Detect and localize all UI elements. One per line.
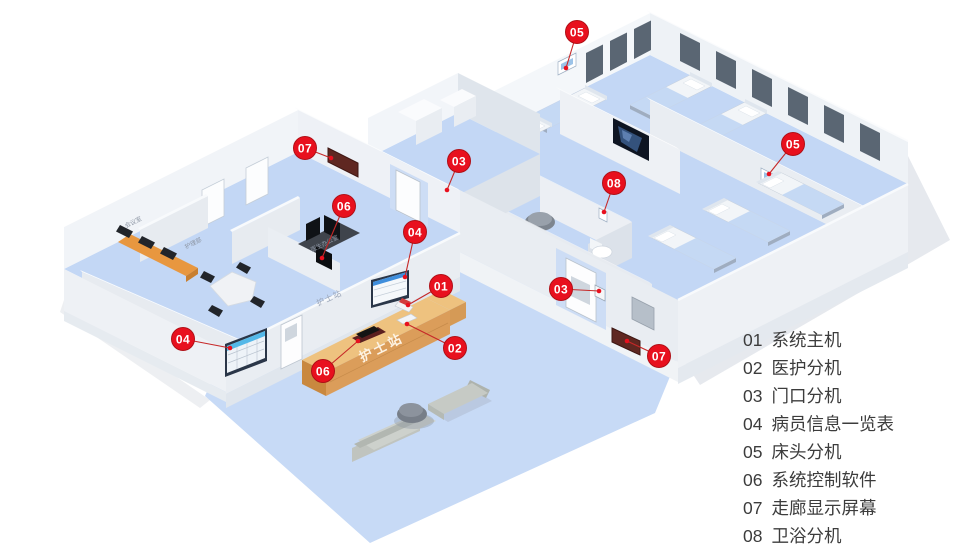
legend-item-number: 03 (743, 386, 762, 406)
svg-text:03: 03 (452, 155, 466, 169)
legend-item-label: 病员信息一览表 (771, 414, 894, 434)
legend-item-number: 08 (743, 526, 762, 546)
legend-item: 05床头分机 (743, 438, 894, 466)
legend-item: 01系统主机 (743, 326, 894, 354)
svg-text:07: 07 (652, 350, 666, 364)
legend-item: 04病员信息一览表 (743, 410, 894, 438)
legend-item-label: 床头分机 (771, 442, 841, 462)
svg-text:06: 06 (316, 365, 330, 379)
legend-item-label: 系统控制软件 (771, 470, 876, 490)
svg-text:01: 01 (434, 280, 448, 294)
legend-item: 08卫浴分机 (743, 522, 894, 550)
legend: 01系统主机 02医护分机 03门口分机 04病员信息一览表 05床头分机 06… (743, 326, 894, 550)
svg-text:05: 05 (570, 26, 584, 40)
legend-item: 06系统控制软件 (743, 466, 894, 494)
legend-item-label: 走廊显示屏幕 (771, 498, 876, 518)
entrance-door (281, 315, 302, 369)
legend-item-number: 05 (743, 442, 762, 462)
legend-item: 07走廊显示屏幕 (743, 494, 894, 522)
legend-item-number: 01 (743, 330, 762, 350)
svg-text:04: 04 (408, 226, 422, 240)
legend-item-number: 07 (743, 498, 762, 518)
svg-text:06: 06 (337, 200, 351, 214)
legend-item: 03门口分机 (743, 382, 894, 410)
legend-item: 02医护分机 (743, 354, 894, 382)
svg-text:02: 02 (448, 342, 462, 356)
svg-text:04: 04 (176, 333, 190, 347)
svg-text:05: 05 (786, 138, 800, 152)
svg-text:08: 08 (607, 177, 621, 191)
legend-item-number: 06 (743, 470, 762, 490)
legend-item-number: 04 (743, 414, 762, 434)
legend-item-label: 卫浴分机 (771, 526, 841, 546)
legend-item-number: 02 (743, 358, 762, 378)
legend-item-label: 门口分机 (771, 386, 841, 406)
svg-text:07: 07 (298, 142, 312, 156)
legend-item-label: 系统主机 (771, 330, 841, 350)
svg-text:03: 03 (554, 283, 568, 297)
legend-item-label: 医护分机 (771, 358, 841, 378)
